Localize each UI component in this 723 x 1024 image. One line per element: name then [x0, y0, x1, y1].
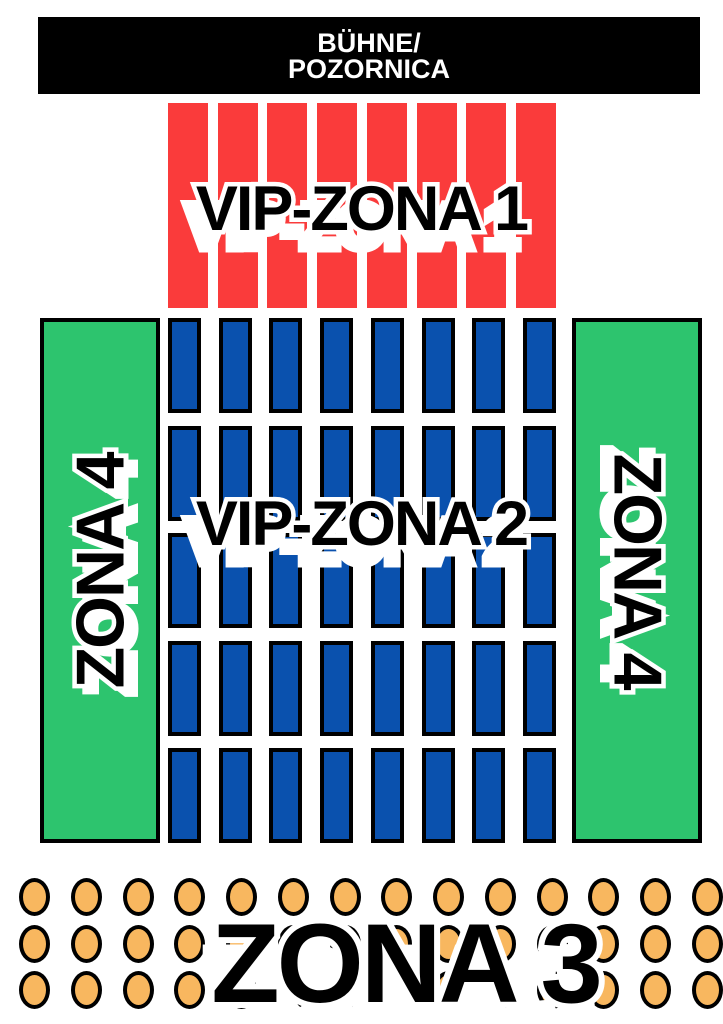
zona3-seat: [174, 925, 205, 963]
vip2-seat: [371, 318, 404, 413]
zona3-seat: [588, 925, 619, 963]
vip2-seat: [523, 748, 556, 843]
zona3-seat: [381, 878, 412, 916]
zona3-seat: [278, 971, 309, 1009]
vip2-seat: [269, 641, 302, 736]
zona3-seat: [433, 971, 464, 1009]
vip1-bar: [367, 103, 407, 308]
vip2-seat: [472, 426, 505, 521]
vip2-seat: [168, 533, 201, 628]
vip2-seat: [269, 533, 302, 628]
zona3-seat: [692, 971, 723, 1009]
zona3-seat: [19, 878, 50, 916]
zona3-seat: [692, 878, 723, 916]
vip2-seat: [320, 641, 353, 736]
vip2-seat: [523, 641, 556, 736]
zona3-seat: [278, 925, 309, 963]
stage-line2: POZORNICA: [288, 56, 450, 82]
vip1-zone[interactable]: [168, 103, 556, 308]
zona3-seat: [433, 878, 464, 916]
vip1-bar: [417, 103, 457, 308]
vip2-seat: [523, 426, 556, 521]
vip2-zone[interactable]: [168, 318, 556, 843]
vip2-seat: [422, 641, 455, 736]
seating-chart: BÜHNE/ POZORNICA VIP-ZONA 1 VIP-ZONA 1 Z…: [0, 0, 723, 1024]
vip2-seat: [472, 533, 505, 628]
zona3-seat: [537, 971, 568, 1009]
vip2-seat: [320, 318, 353, 413]
vip2-seat: [269, 426, 302, 521]
zona3-seat: [174, 878, 205, 916]
stage-line1: BÜHNE/: [317, 30, 421, 56]
zona3-seat: [71, 925, 102, 963]
vip2-seat: [320, 426, 353, 521]
vip1-bar: [168, 103, 208, 308]
vip2-seat: [523, 533, 556, 628]
vip2-seat: [219, 533, 252, 628]
zona3-seat: [123, 878, 154, 916]
zona3-seat: [226, 971, 257, 1009]
vip2-seat: [371, 533, 404, 628]
zona3-seat: [692, 925, 723, 963]
zona4-left-panel[interactable]: ZONA 4 ZONA 4: [40, 318, 160, 843]
vip2-seat: [168, 748, 201, 843]
stage-banner: BÜHNE/ POZORNICA: [38, 17, 700, 94]
zona3-seat: [19, 971, 50, 1009]
vip2-seat: [168, 426, 201, 521]
vip2-seat: [472, 318, 505, 413]
vip2-seat: [269, 748, 302, 843]
zona3-seat: [640, 971, 671, 1009]
vip2-seat: [472, 748, 505, 843]
zona3-seat: [123, 971, 154, 1009]
zona3-seat: [588, 878, 619, 916]
vip2-seat: [371, 426, 404, 521]
vip1-bar: [267, 103, 307, 308]
vip1-bar: [466, 103, 506, 308]
zona3-zone[interactable]: [19, 878, 723, 1009]
vip2-seat: [269, 318, 302, 413]
zona3-seat: [330, 925, 361, 963]
vip2-seat: [219, 318, 252, 413]
zona3-seat: [226, 925, 257, 963]
zona3-seat: [485, 878, 516, 916]
vip2-seat: [219, 641, 252, 736]
vip2-seat: [219, 426, 252, 521]
vip1-bar: [516, 103, 556, 308]
zona3-seat: [330, 971, 361, 1009]
zona3-seat: [174, 971, 205, 1009]
vip2-seat: [168, 318, 201, 413]
zona3-seat: [71, 971, 102, 1009]
zona4-right-panel[interactable]: ZONA 4 ZONA 4: [572, 318, 702, 843]
zona3-seat: [588, 971, 619, 1009]
zona4-left-label: ZONA 4 ZONA 4: [66, 453, 134, 688]
zona3-seat: [640, 925, 671, 963]
vip2-seat: [422, 426, 455, 521]
vip2-seat: [422, 318, 455, 413]
vip2-seat: [523, 318, 556, 413]
zona3-seat: [433, 925, 464, 963]
vip2-seat: [371, 641, 404, 736]
zona3-seat: [278, 878, 309, 916]
zona3-seat: [485, 971, 516, 1009]
vip1-bar: [218, 103, 258, 308]
zona3-seat: [485, 925, 516, 963]
vip2-seat: [320, 533, 353, 628]
vip2-seat: [472, 641, 505, 736]
zona3-seat: [226, 878, 257, 916]
zona3-seat: [640, 878, 671, 916]
vip2-seat: [422, 533, 455, 628]
vip2-seat: [371, 748, 404, 843]
zona4-right-label: ZONA 4 ZONA 4: [603, 453, 671, 688]
zona3-seat: [123, 925, 154, 963]
vip2-seat: [219, 748, 252, 843]
zona3-seat: [537, 878, 568, 916]
zona3-seat: [537, 925, 568, 963]
vip1-bar: [317, 103, 357, 308]
zona3-seat: [71, 878, 102, 916]
zona3-seat: [381, 971, 412, 1009]
zona3-seat: [19, 925, 50, 963]
vip2-seat: [422, 748, 455, 843]
zona3-seat: [381, 925, 412, 963]
vip2-seat: [168, 641, 201, 736]
zona3-seat: [330, 878, 361, 916]
vip2-seat: [320, 748, 353, 843]
